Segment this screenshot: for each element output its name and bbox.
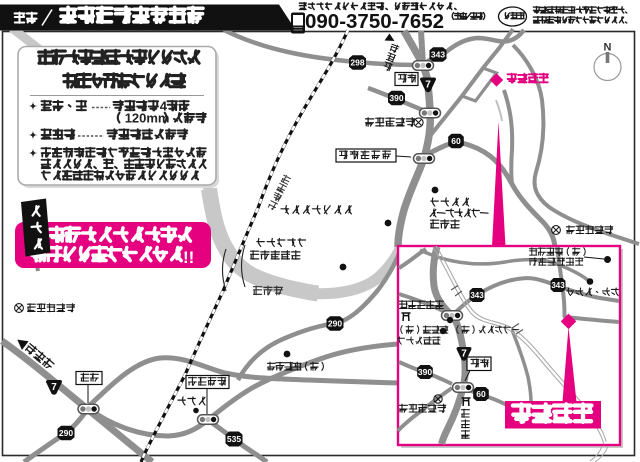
svg-text:7: 7 bbox=[461, 349, 467, 360]
svg-text:343: 343 bbox=[470, 291, 484, 300]
svg-text:343: 343 bbox=[431, 50, 445, 60]
svg-text:60: 60 bbox=[476, 389, 486, 399]
svg-text:090-3750-7652: 090-3750-7652 bbox=[305, 10, 444, 33]
svg-text:120mm: 120mm bbox=[125, 110, 170, 125]
svg-text:343: 343 bbox=[551, 281, 565, 290]
svg-text:290: 290 bbox=[59, 428, 73, 438]
svg-text:535: 535 bbox=[227, 434, 241, 444]
svg-text:290: 290 bbox=[328, 319, 342, 329]
svg-text:60: 60 bbox=[451, 136, 461, 146]
svg-text:298: 298 bbox=[350, 58, 364, 68]
svg-text:390: 390 bbox=[418, 367, 432, 377]
svg-text:7: 7 bbox=[425, 80, 431, 91]
svg-text:7: 7 bbox=[51, 382, 57, 393]
svg-text:N: N bbox=[604, 42, 612, 54]
svg-text:390: 390 bbox=[389, 93, 403, 103]
svg-text:!!: !! bbox=[183, 248, 194, 267]
